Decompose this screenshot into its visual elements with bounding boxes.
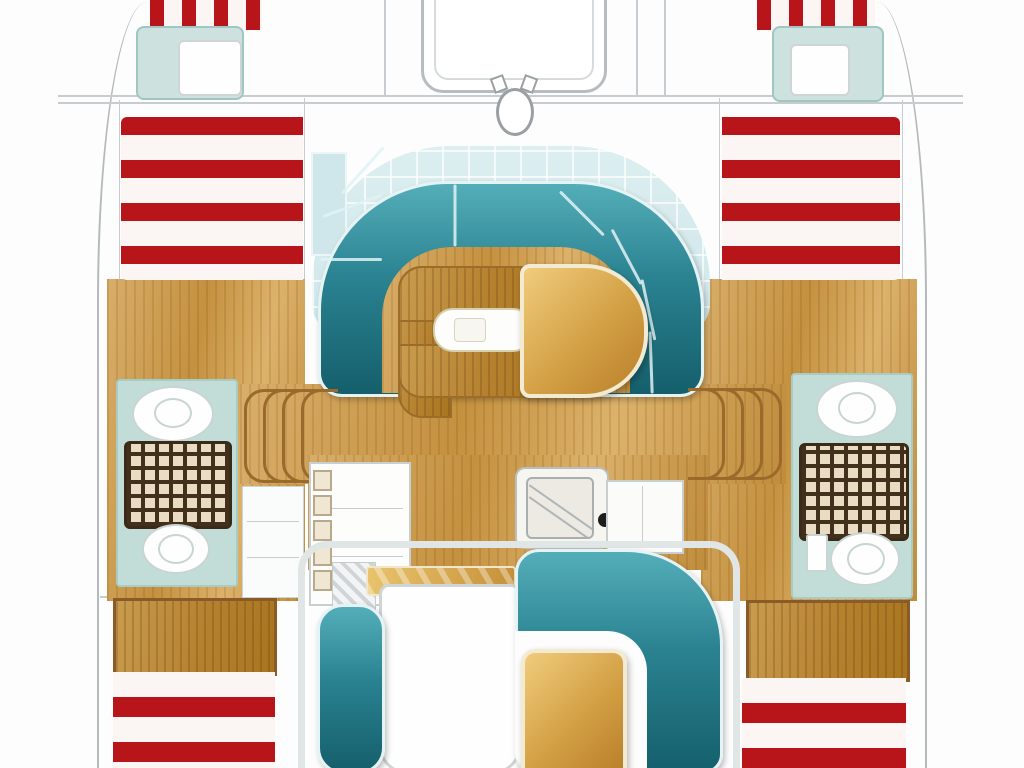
salon-table-white-inset	[433, 308, 533, 352]
counter-line	[331, 508, 403, 509]
bow-divider-line	[664, 0, 666, 95]
bow-trampoline-inner-line	[434, 0, 594, 80]
bow-divider-line	[636, 0, 638, 95]
cockpit-port-bench	[317, 604, 385, 768]
counter-line	[642, 486, 643, 546]
starboard-shower-grate	[799, 443, 909, 541]
port-sink-bowl	[154, 398, 192, 428]
starboard-cistern	[806, 534, 828, 572]
port-shower-grate	[124, 441, 232, 529]
sink-drain-line	[529, 496, 594, 539]
sink-drain-line	[529, 484, 594, 532]
port-stern-stripes	[113, 672, 275, 768]
galley-sink-unit	[515, 467, 609, 549]
bow-trampoline	[421, 0, 607, 93]
cockpit-gold-table	[521, 649, 627, 768]
starboard-stern-berth	[746, 600, 910, 682]
galley-locker-cell	[313, 520, 332, 541]
cockpit-white-module	[379, 584, 521, 768]
salon-table-inset-detail	[454, 318, 486, 342]
floor-plan	[0, 0, 1024, 768]
port-lockers	[242, 486, 304, 598]
galley-sink-basin	[526, 477, 594, 539]
starboard-sunpad	[722, 117, 900, 280]
starboard-toilet-seat	[847, 543, 885, 575]
windlass-icon	[496, 88, 534, 136]
settee-cushion-line	[454, 185, 457, 247]
settee-cushion-line	[320, 258, 382, 261]
starboard-stern-stripes	[742, 678, 906, 768]
locker-line	[247, 521, 299, 522]
galley-locker-cell	[313, 470, 332, 491]
salon-d-table	[520, 264, 648, 398]
starboard-bow-pillow	[790, 44, 850, 96]
starboard-steps	[688, 388, 725, 480]
galley-locker-cell	[313, 495, 332, 516]
port-stern-berth	[113, 598, 277, 676]
port-sunpad	[121, 117, 303, 280]
port-toilet-seat	[158, 534, 194, 564]
starboard-sink-bowl	[838, 392, 876, 424]
locker-line	[247, 557, 299, 558]
bow-divider-line	[384, 0, 386, 95]
port-bow-pillow	[178, 40, 242, 96]
